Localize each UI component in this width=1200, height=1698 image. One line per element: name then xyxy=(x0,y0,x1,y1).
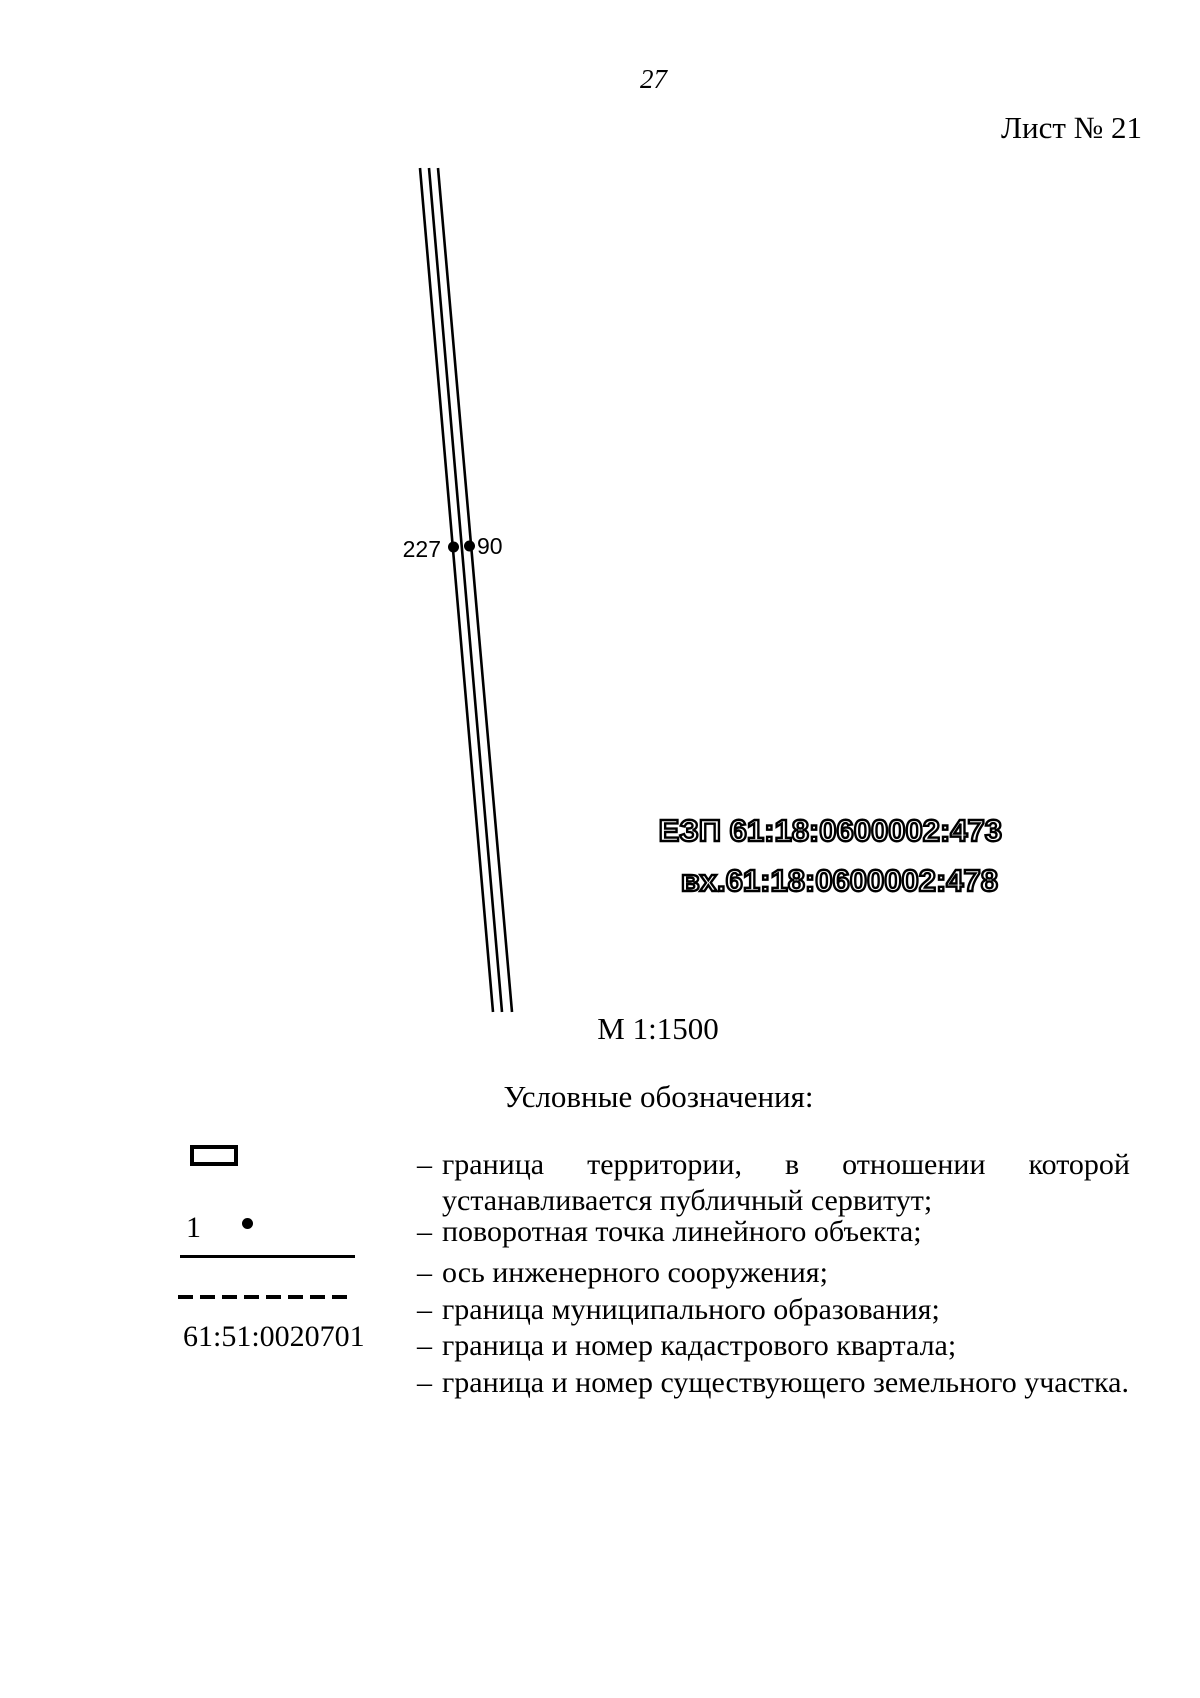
dash-marker: – xyxy=(417,1292,442,1328)
legend-row-cadastral-quarter: –граница и номер кадастрового квартала; xyxy=(417,1328,1130,1364)
legend-row-municipal-boundary: –граница муниципального образования; xyxy=(417,1292,1130,1328)
legend-row-turning-point: –поворотная точка линейного объекта; xyxy=(417,1214,1130,1250)
point-symbol-number: 1 xyxy=(186,1211,226,1245)
legend-row-text: граница и номер существующего земельного… xyxy=(442,1366,1129,1399)
legend-row-text: ось инженерного сооружения; xyxy=(442,1256,828,1289)
document-page: 27 Лист № 21 227 90 ЕЗП 61:18:0600002:47… xyxy=(0,0,1200,1698)
turning-point-227-label: 227 xyxy=(403,536,441,562)
ezp-parcel-label: ЕЗП 61:18:0600002:473 xyxy=(659,813,1002,848)
axis-line-symbol xyxy=(180,1255,355,1258)
map-scale-label: М 1:1500 xyxy=(500,1011,816,1047)
dash-marker: – xyxy=(417,1328,442,1364)
legend-row-line1: граница территории, в отношении которой xyxy=(442,1147,1130,1183)
map-drawing: 227 90 ЕЗП 61:18:0600002:473 вх.61:18:06… xyxy=(0,0,1200,1698)
dash-marker: – xyxy=(417,1147,442,1183)
dash-marker: – xyxy=(417,1214,442,1250)
turning-point-90-dot xyxy=(464,541,475,552)
municipal-boundary-symbol xyxy=(178,1295,354,1299)
cadastral-quarter-number: 61:51:0020701 xyxy=(183,1320,383,1354)
legend-row-marker: – xyxy=(417,1147,442,1183)
turning-point-227-dot xyxy=(448,542,459,553)
legend-heading: Условные обозначения: xyxy=(400,1079,917,1115)
engineering-axis-line xyxy=(429,168,502,1012)
territory-boundary-symbol xyxy=(190,1145,238,1166)
legend-row-text: граница муниципального образования; xyxy=(442,1293,940,1326)
legend-row-existing-parcel: –граница и номер существующего земельног… xyxy=(417,1365,1130,1401)
legend-row-text: поворотная точка линейного объекта; xyxy=(442,1215,922,1248)
servitude-boundary-line-right xyxy=(438,168,512,1012)
servitude-boundary-line-left xyxy=(420,168,493,1012)
legend-row-engineering-axis: –ось инженерного сооружения; xyxy=(417,1255,1130,1291)
point-symbol-dot xyxy=(242,1218,253,1229)
dash-marker: – xyxy=(417,1365,442,1401)
legend-row-text: граница и номер кадастрового квартала; xyxy=(442,1329,956,1362)
legend-row-territory-boundary: граница территории, в отношении которой … xyxy=(442,1147,1130,1219)
turning-point-90-label: 90 xyxy=(477,533,503,559)
dash-marker: – xyxy=(417,1255,442,1291)
entry-parcel-label: вх.61:18:0600002:478 xyxy=(681,863,998,898)
